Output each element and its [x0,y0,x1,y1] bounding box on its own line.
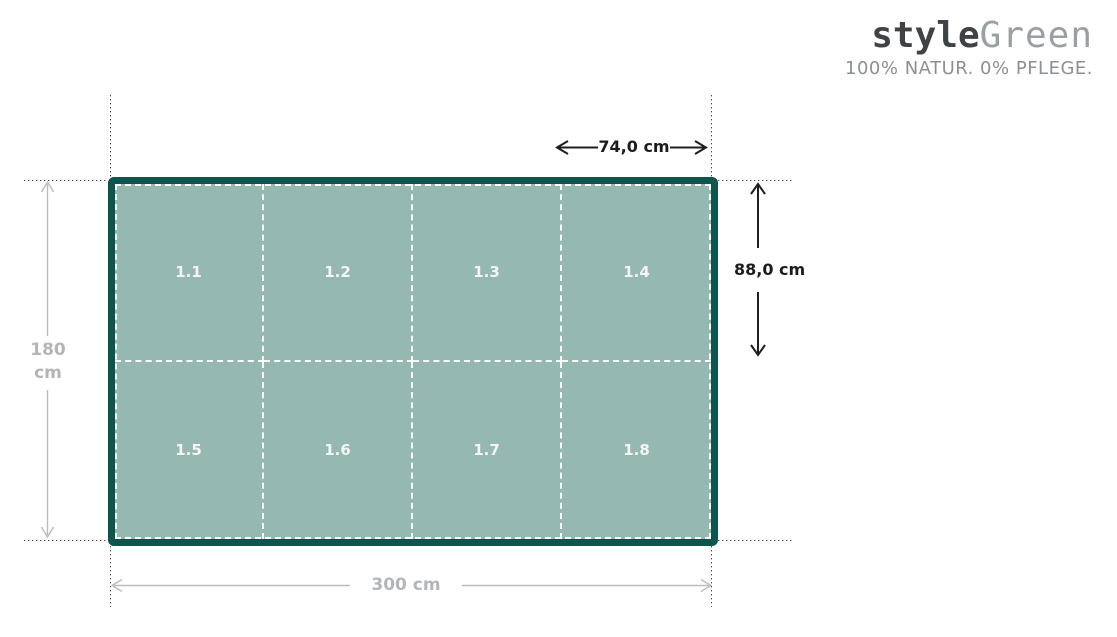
brand-logo: styleGreen 100% NATUR. 0% PFLEGE. [845,16,1093,79]
panel-cell: 1.4 [562,184,711,362]
cell-label: 1.8 [623,441,650,459]
brand-name-style: style [871,15,979,56]
dimension-label-total-height-value: 180 [26,339,70,362]
panel-module-grid: 1.1 1.2 1.3 1.4 1.5 1.6 1.7 1.8 [115,184,711,539]
dimension-label-total-height: 180 cm [26,339,70,385]
dimension-label-cell-height: 88,0 cm [734,260,804,279]
panel-cell: 1.2 [264,184,413,362]
dimension-diagram-page: styleGreen 100% NATUR. 0% PFLEGE. [0,0,1117,637]
dimension-label-cell-width: 74,0 cm [596,137,672,156]
cell-label: 1.6 [324,441,351,459]
panel-cell: 1.3 [413,184,562,362]
panel-cell: 1.6 [264,362,413,540]
brand-tagline: 100% NATUR. 0% PFLEGE. [845,58,1093,79]
brand-name: styleGreen [845,16,1093,56]
cell-label: 1.3 [473,263,500,281]
panel-cell: 1.8 [562,362,711,540]
dimension-label-total-width: 300 cm [355,575,457,595]
cell-label: 1.4 [623,263,650,281]
cell-label: 1.1 [175,263,202,281]
panel-cell: 1.5 [115,362,264,540]
panel-cell: 1.7 [413,362,562,540]
cell-label: 1.2 [324,263,351,281]
brand-name-green: Green [980,15,1093,56]
cell-label: 1.7 [473,441,500,459]
cell-label: 1.5 [175,441,202,459]
dimension-label-total-height-unit: cm [26,362,70,385]
panel-cell: 1.1 [115,184,264,362]
panel-outline: 1.1 1.2 1.3 1.4 1.5 1.6 1.7 1.8 [108,177,718,546]
